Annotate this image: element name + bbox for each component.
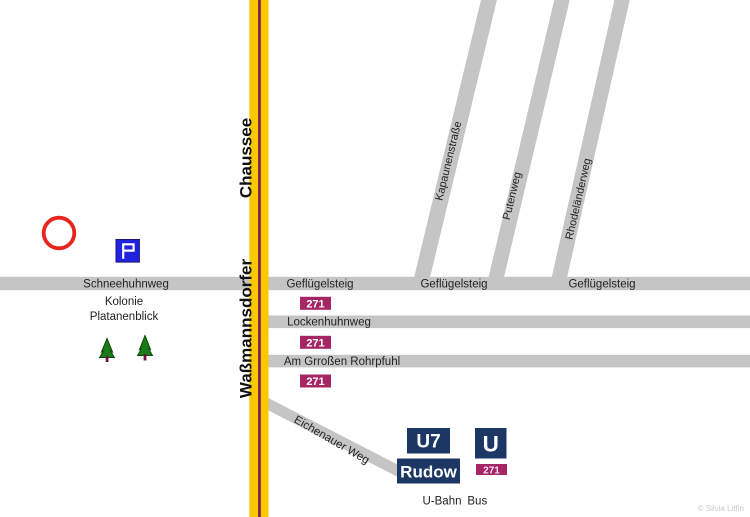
svg-text:Platanenblick: Platanenblick xyxy=(90,311,159,323)
svg-text:271: 271 xyxy=(306,298,324,310)
svg-text:© Silvia Litfin: © Silvia Litfin xyxy=(698,504,744,513)
svg-text:U-Bahn: U-Bahn xyxy=(423,496,462,508)
svg-text:Lockenhuhnweg: Lockenhuhnweg xyxy=(287,317,371,329)
svg-text:Waßmannsdorfer: Waßmannsdorfer xyxy=(237,259,256,399)
svg-text:Geflügelsteig: Geflügelsteig xyxy=(420,279,487,291)
svg-text:Geflügelsteig: Geflügelsteig xyxy=(286,279,353,291)
svg-text:271: 271 xyxy=(306,376,324,388)
svg-text:271: 271 xyxy=(483,465,500,476)
svg-text:U: U xyxy=(483,431,499,456)
svg-text:Rudow: Rudow xyxy=(400,463,457,482)
svg-text:271: 271 xyxy=(306,337,324,349)
svg-text:Geflügelsteig: Geflügelsteig xyxy=(568,279,635,291)
svg-text:U7: U7 xyxy=(416,432,440,453)
svg-text:Am Grroßen Rohrpfuhl: Am Grroßen Rohrpfuhl xyxy=(284,356,400,368)
svg-text:Schneehuhnweg: Schneehuhnweg xyxy=(83,279,169,291)
svg-text:Chaussee: Chaussee xyxy=(237,118,256,198)
svg-text:Kolonie: Kolonie xyxy=(105,296,143,308)
svg-text:Bus: Bus xyxy=(467,496,487,508)
